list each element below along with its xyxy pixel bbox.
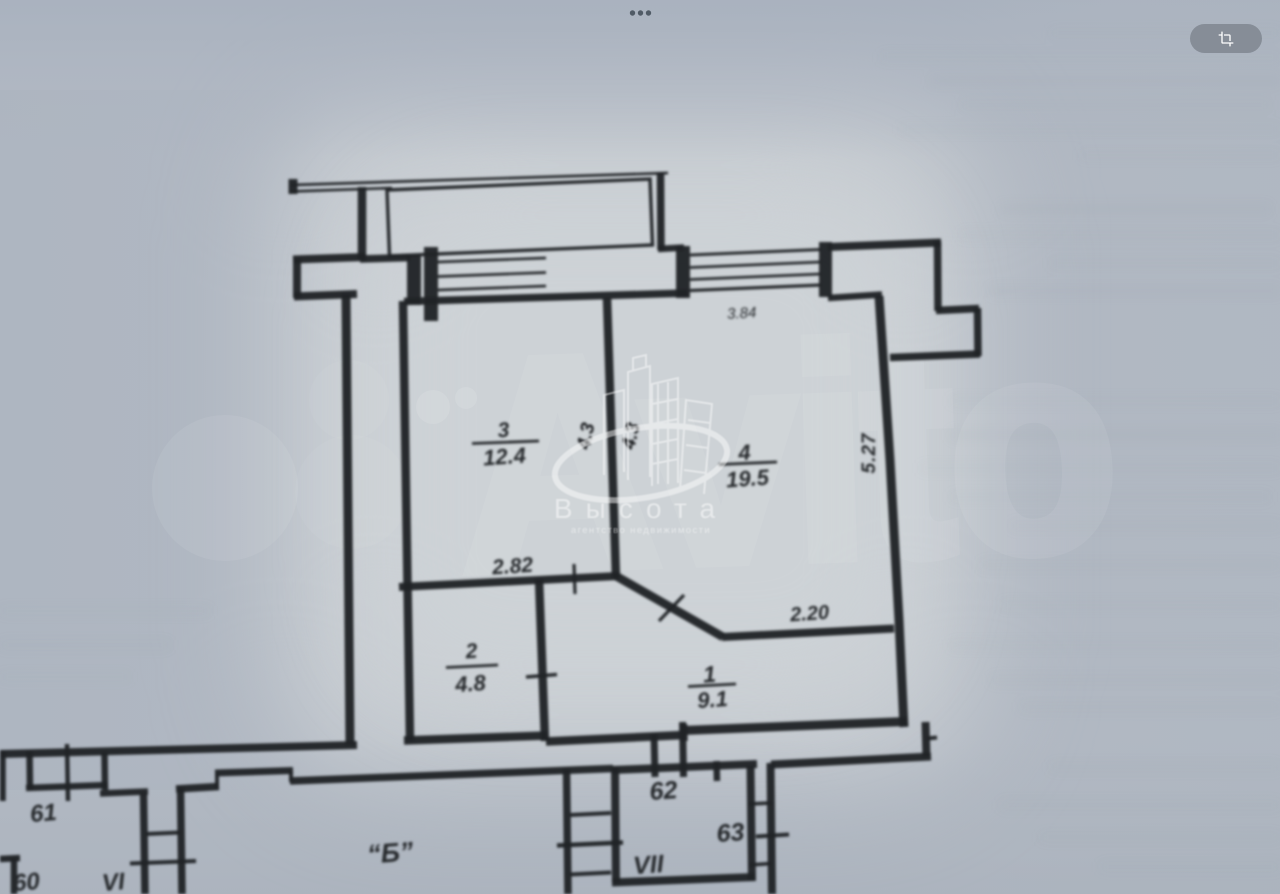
svg-text:Высота: Высота bbox=[554, 493, 728, 524]
svg-text:агентство недвижимости: агентство недвижимости bbox=[571, 525, 711, 536]
